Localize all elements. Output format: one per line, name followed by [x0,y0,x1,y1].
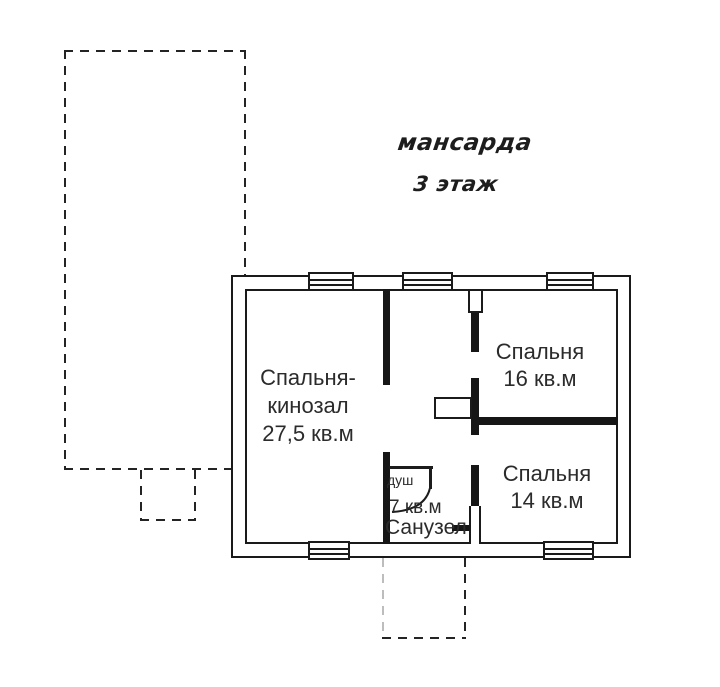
room-name-line2: кинозал [250,392,366,420]
room-area: 27,5 кв.м [250,420,366,448]
room-area: 16 кв.м [488,365,592,392]
interior-wall-middle-center [471,378,479,435]
floor-plan-canvas: мансарда 3 этаж [0,0,720,687]
roof-ledge-outline-right [194,470,196,521]
roof-ledge-outline-left [140,470,142,521]
interior-wall-bedroom-divider [471,417,618,425]
room-label-bedroom-14: Спальня 14 кв.м [495,460,599,514]
room-label-bedroom-cinema: Спальня- кинозал 27,5 кв.м [250,364,366,448]
floor-title-number: 3 этаж [394,172,517,196]
floor-title-type: мансарда [396,130,520,156]
room-area: 14 кв.м [495,487,599,514]
bathroom-area: 7 кв.м [389,498,442,518]
bathroom-label: Санузел [385,516,467,539]
window-top-1 [308,272,354,291]
attic-roof-outline-right [244,50,246,275]
shower-label: душ [387,472,413,488]
window-top-3 [546,272,594,291]
interior-wall-cinema-upper [383,289,390,385]
interior-wall-middle-lower [471,465,479,506]
balcony-outline-left [382,558,384,639]
room-label-bedroom-16: Спальня 16 кв.м [488,338,592,392]
wall-niche [468,291,483,313]
window-bottom-2 [543,541,594,560]
room-name: Спальня [495,460,599,487]
chimney-shaft [434,397,472,419]
attic-roof-outline-top [64,50,245,52]
balcony-outline-bottom [382,637,466,639]
balcony-outline-right [464,558,466,639]
roof-ledge-outline-bottom [140,519,196,521]
attic-roof-outline-left [64,50,66,470]
interior-wall-middle-upper [471,313,479,352]
door-channel [469,506,481,544]
window-bottom-1 [308,541,350,560]
window-top-2 [402,272,453,291]
room-name: Спальня [488,338,592,365]
attic-roof-outline-bottom [64,468,232,470]
room-name-line1: Спальня- [250,364,366,392]
